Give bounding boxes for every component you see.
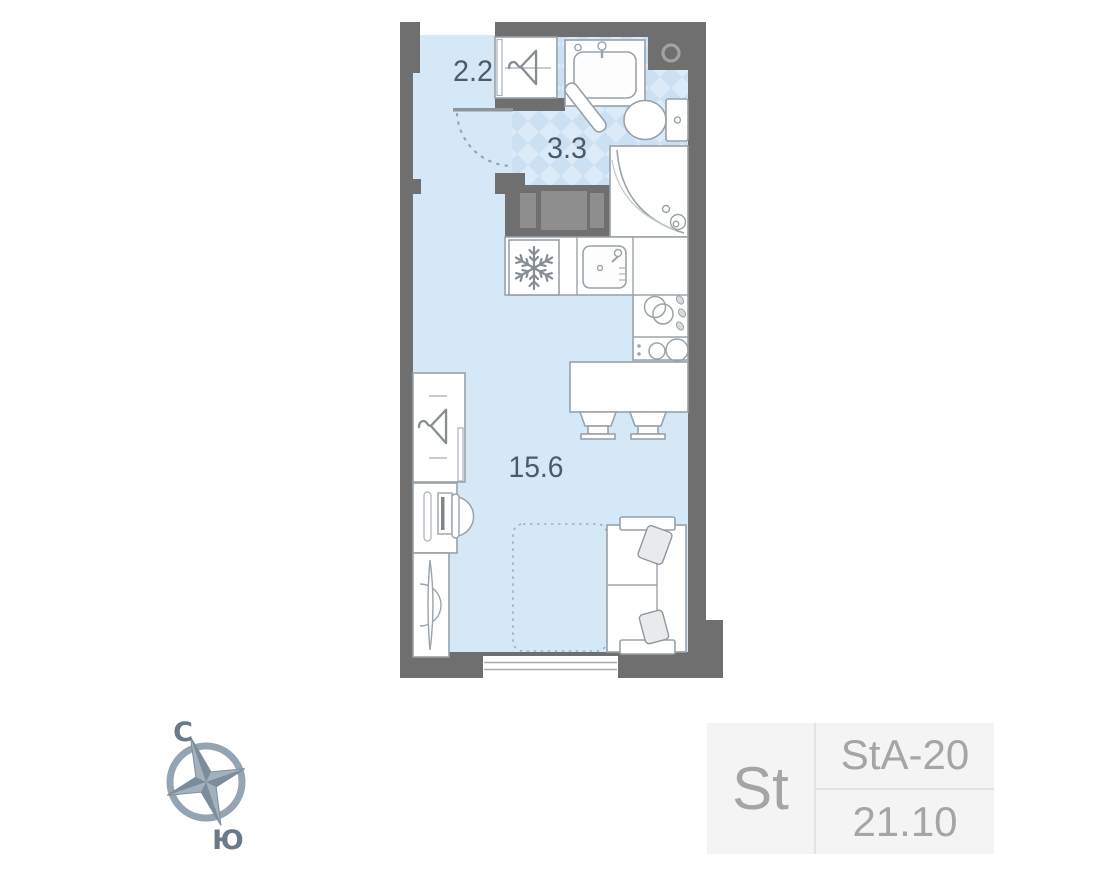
unit-type-label: St xyxy=(707,723,814,854)
door-leaf-open xyxy=(453,108,513,112)
monitor-icon xyxy=(438,493,452,534)
compass-south-label: Ю xyxy=(212,825,244,856)
vent-shaft xyxy=(648,37,688,70)
bottom-right-jut xyxy=(706,620,723,678)
toilet-bowl xyxy=(624,101,666,140)
right-wall xyxy=(688,22,706,678)
compass-north-label: С xyxy=(173,717,193,748)
unit-card-right: StA-20 21.10 xyxy=(816,723,994,854)
stool xyxy=(580,412,616,439)
corner-shower xyxy=(610,146,688,237)
toilet xyxy=(624,99,688,141)
wardrobe-door xyxy=(458,428,463,481)
basin xyxy=(574,52,636,98)
compass: С Ю xyxy=(152,717,260,856)
storage-panel xyxy=(520,193,536,228)
storage-panel xyxy=(541,191,587,230)
sofa xyxy=(607,517,686,654)
toilet-tank xyxy=(666,99,688,141)
stool xyxy=(630,412,666,439)
storage-panel xyxy=(590,193,604,228)
hall-closet xyxy=(495,37,557,98)
table xyxy=(570,362,688,412)
room-label-bathroom: 3.3 xyxy=(547,132,587,165)
desk-shelf xyxy=(424,492,431,541)
window xyxy=(483,656,618,678)
unit-card: St StA-20 21.10 xyxy=(707,723,994,854)
unit-area: 21.10 xyxy=(816,790,994,855)
room-label-hallway: 2.2 xyxy=(453,55,493,88)
top-left-corner-wall xyxy=(400,22,420,73)
top-wall xyxy=(495,22,688,37)
floorplan-canvas: 2.2 3.3 15.6 С Ю St StA-20 21.10 xyxy=(0,0,1115,880)
wardrobe xyxy=(413,373,465,482)
left-wall-pier xyxy=(413,179,421,194)
left-wall xyxy=(400,22,413,678)
unit-code: StA-20 xyxy=(816,723,994,788)
kitchen-sink xyxy=(583,246,626,288)
tv-console xyxy=(413,553,449,657)
room-label-living-room: 15.6 xyxy=(509,451,564,484)
